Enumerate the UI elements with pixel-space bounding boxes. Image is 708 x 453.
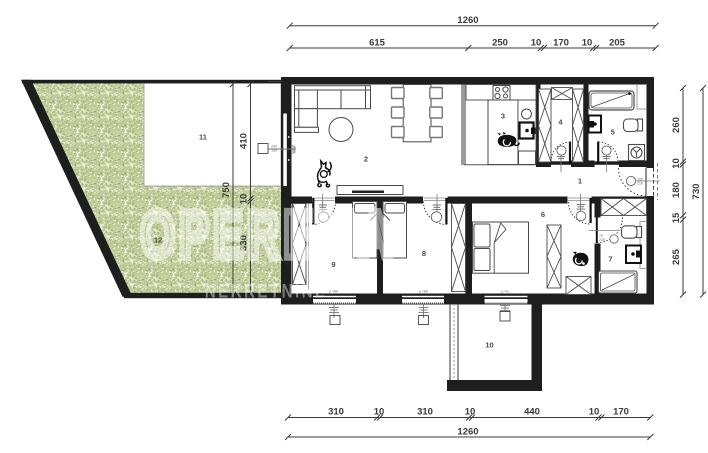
svg-text:250: 250 <box>492 38 508 49</box>
svg-text:10: 10 <box>589 407 600 418</box>
svg-text:11: 11 <box>199 133 207 142</box>
svg-text:p +0: p +0 <box>502 290 509 294</box>
svg-text:OPEREMA: OPEREMA <box>140 197 395 271</box>
svg-text:210: 210 <box>637 182 643 186</box>
svg-text:615: 615 <box>369 38 386 49</box>
svg-text:10: 10 <box>485 341 493 350</box>
svg-text:7: 7 <box>608 255 612 264</box>
svg-text:5: 5 <box>611 128 615 137</box>
svg-text:15: 15 <box>671 212 682 223</box>
svg-text:170: 170 <box>553 38 569 49</box>
svg-text:10: 10 <box>531 38 542 49</box>
svg-text:180: 180 <box>671 182 682 198</box>
svg-text:310: 310 <box>328 407 344 418</box>
svg-text:170: 170 <box>613 407 629 418</box>
svg-text:1260: 1260 <box>457 15 478 26</box>
svg-text:10: 10 <box>465 407 476 418</box>
svg-text:6: 6 <box>541 210 545 219</box>
svg-text:p +60: p +60 <box>419 290 428 294</box>
svg-text:205: 205 <box>609 38 626 49</box>
svg-text:265: 265 <box>671 248 682 265</box>
svg-text:10: 10 <box>582 38 593 49</box>
svg-text:1: 1 <box>578 177 582 186</box>
svg-text:1260: 1260 <box>457 427 478 438</box>
svg-text:p +60: p +60 <box>329 290 338 294</box>
svg-text:150: 150 <box>271 149 277 153</box>
svg-text:3: 3 <box>501 112 505 121</box>
svg-text:410: 410 <box>239 133 250 149</box>
svg-text:260: 260 <box>671 117 682 133</box>
svg-text:NEKRETNINE: NEKRETNINE <box>205 280 328 302</box>
svg-text:8: 8 <box>422 249 426 258</box>
svg-text:750: 750 <box>221 182 232 198</box>
svg-text:215: 215 <box>599 238 605 242</box>
svg-text:440: 440 <box>524 407 540 418</box>
svg-text:10: 10 <box>671 158 682 169</box>
svg-text:310: 310 <box>417 407 433 418</box>
svg-text:730: 730 <box>691 184 702 200</box>
svg-text:10: 10 <box>374 407 385 418</box>
svg-text:2: 2 <box>364 155 368 164</box>
